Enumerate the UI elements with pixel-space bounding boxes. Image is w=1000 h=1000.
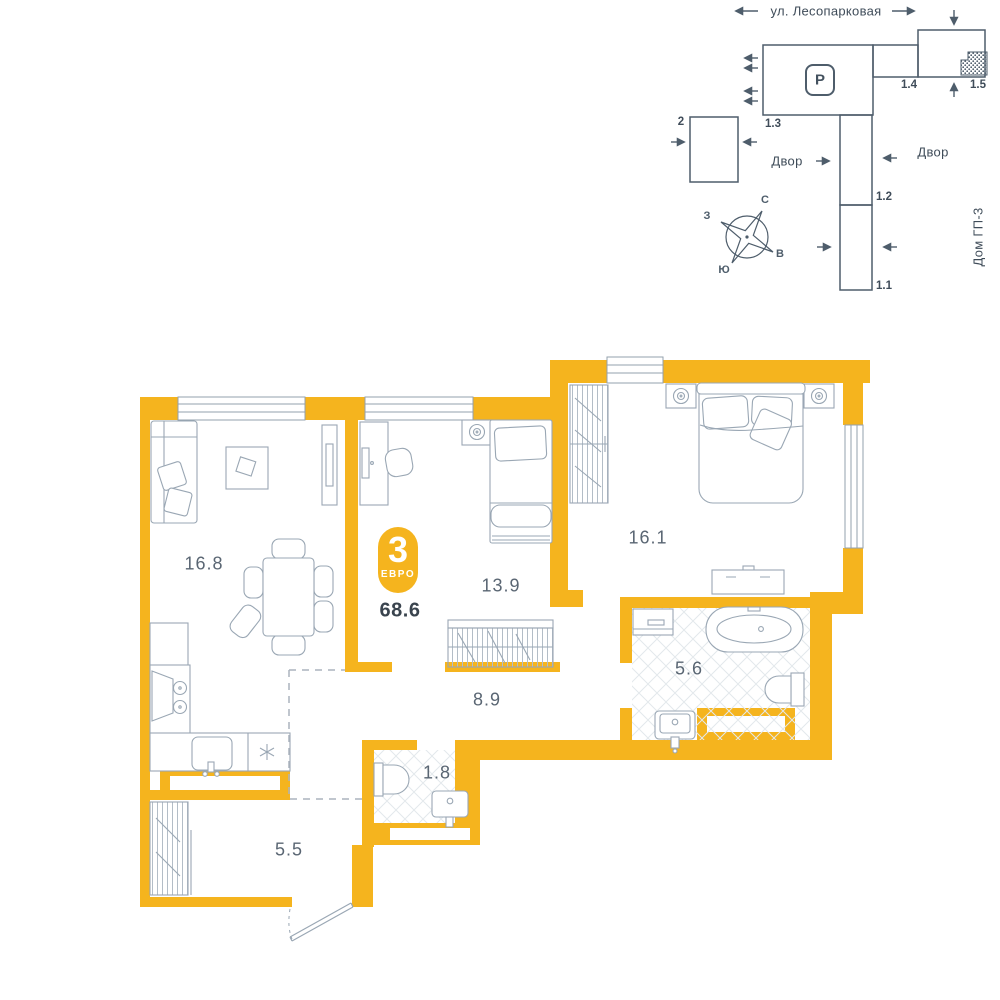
room-label-hallway: 8.9	[473, 690, 501, 711]
building-label-1-5: 1.5	[970, 79, 986, 91]
floorplan-page: 16.8 13.9 16.1 5.6 8.9 1.8 5.5 3 ЕВРО 68…	[0, 0, 1000, 1000]
site-building-1-1	[840, 205, 872, 290]
floor-plan-drawing	[0, 0, 1000, 1000]
master-window-icon	[607, 357, 663, 383]
sofa-icon	[151, 421, 197, 523]
toilet-icon	[765, 673, 804, 706]
yard-label-left: Двор	[771, 154, 802, 169]
double-bed-icon	[697, 383, 805, 503]
layout-type: ЕВРО	[381, 569, 415, 580]
parking-letter: P	[815, 72, 825, 89]
building-label-1-3: 1.3	[765, 118, 781, 130]
site-building-1-4	[873, 45, 918, 77]
tv-unit-icon	[322, 425, 337, 505]
room-label-master: 16.1	[628, 528, 667, 549]
building-label-1-1: 1.1	[876, 280, 892, 292]
bedroom-window-icon	[365, 397, 473, 420]
site-building-1-2	[840, 115, 872, 205]
desk-chair-icon	[384, 447, 414, 478]
living-window-icon	[178, 397, 305, 420]
dining-table-icon	[227, 539, 333, 655]
master-side-window-icon	[845, 425, 863, 548]
yard-label-right: Двор	[917, 145, 948, 160]
compass-north: С	[761, 194, 769, 206]
kitchen-sink-icon	[192, 737, 232, 776]
entry-door-icon	[289, 903, 353, 941]
compass-south: Ю	[718, 264, 729, 276]
master-wardrobe-icon	[570, 385, 608, 503]
room-label-living: 16.8	[184, 554, 223, 575]
kitchen-zone-dashes	[289, 670, 362, 799]
nightstand-right-icon	[804, 384, 834, 408]
washing-machine-icon	[633, 609, 673, 635]
current-location-marker	[961, 52, 987, 75]
entry-wardrobe-icon	[150, 802, 191, 895]
street-name: ул. Лесопарковая	[770, 4, 881, 19]
bedside-table-icon	[462, 420, 492, 445]
rooms-count: 3	[388, 530, 408, 570]
nightstand-left-icon	[666, 384, 696, 408]
room-label-entry: 5.5	[275, 840, 303, 861]
wc-toilet-icon	[374, 763, 409, 796]
room-label-wc: 1.8	[423, 763, 451, 784]
bedroom-wardrobe-icon	[448, 620, 553, 667]
total-area: 68.6	[380, 600, 421, 623]
desk-icon	[360, 422, 388, 505]
compass-icon	[721, 211, 773, 263]
bathtub-icon	[706, 607, 803, 652]
compass-west: З	[704, 210, 711, 222]
room-label-bathroom: 5.6	[675, 659, 703, 680]
building-label-2: 2	[678, 116, 684, 128]
coffee-table-icon	[226, 447, 268, 489]
room-label-bedroom: 13.9	[481, 576, 520, 597]
building-label-1-4: 1.4	[901, 79, 917, 91]
single-bed-icon	[490, 420, 552, 543]
rooms-count-badge: 3 ЕВРО	[378, 527, 418, 593]
building-label-1-2: 1.2	[876, 191, 892, 203]
dresser-icon	[712, 566, 784, 594]
compass-east: В	[776, 248, 784, 260]
site-building-2	[690, 117, 738, 182]
house-label: Дом ГП-3	[971, 207, 986, 266]
